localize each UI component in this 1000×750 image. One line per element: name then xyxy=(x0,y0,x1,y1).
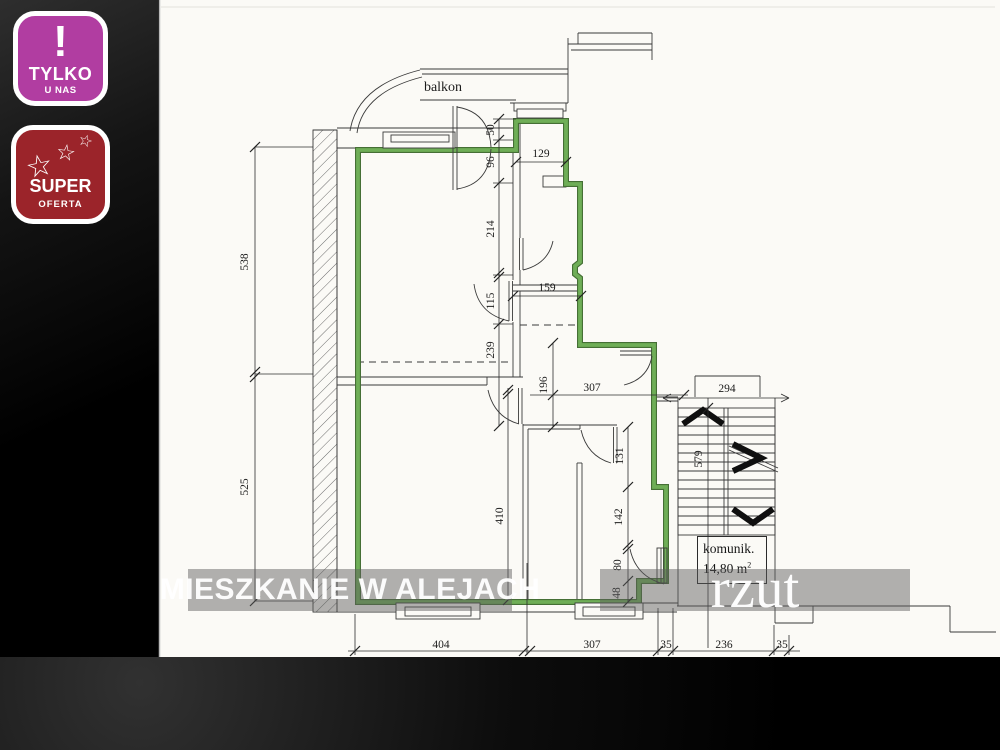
dim-label: 307 xyxy=(583,639,601,651)
watermark-primary-text: MIESZKANIE W ALEJACH xyxy=(160,573,541,607)
exclusive-badge: ! TYLKO U NAS xyxy=(13,11,108,106)
room-name: komunik. xyxy=(703,539,766,559)
dim-label: 236 xyxy=(715,639,733,651)
star-icon: ☆ xyxy=(55,141,78,166)
watermark-primary: MIESZKANIE W ALEJACH xyxy=(188,569,512,611)
super-badge-line2: OFERTA xyxy=(16,199,105,210)
balcony-label: balkon xyxy=(424,80,462,95)
dim-label: 538 xyxy=(239,253,251,271)
dim-label: 115 xyxy=(485,292,497,309)
exclamation-icon: ! xyxy=(18,21,103,63)
dim-label: 214 xyxy=(485,220,497,238)
footer-bar: NIERUCHOMOŚCI Polak-Opyrchał xyxy=(0,657,1000,750)
dim-label: 131 xyxy=(614,447,626,465)
dim-label: 294 xyxy=(718,383,736,395)
left-dark-column: ! TYLKO U NAS ☆ ☆ ☆ SUPER OFERTA xyxy=(0,0,158,657)
dim-label: 159 xyxy=(538,282,556,294)
dim-label: 239 xyxy=(485,341,497,359)
dim-label: 35 xyxy=(660,639,672,651)
dim-label: 196 xyxy=(538,376,550,394)
dim-label: 96 xyxy=(485,156,497,168)
star-icon: ☆ xyxy=(76,132,95,152)
watermark-secondary: rzut xyxy=(600,569,910,611)
dim-label: 307 xyxy=(583,382,601,394)
dim-label: 142 xyxy=(613,508,625,526)
dim-label: 404 xyxy=(432,639,450,651)
super-badge-line1: SUPER xyxy=(16,176,105,197)
listing-image: balkon 538 525 404 307 35 236 35 50 96 2… xyxy=(0,0,1000,750)
dim-label: 579 xyxy=(693,450,705,468)
exclusive-badge-line2: U NAS xyxy=(18,85,103,96)
exclusive-badge-line1: TYLKO xyxy=(18,64,103,85)
watermark-secondary-text: rzut xyxy=(711,569,800,609)
super-offer-badge: ☆ ☆ ☆ SUPER OFERTA xyxy=(11,125,110,224)
dim-label: 410 xyxy=(494,507,506,525)
dim-label: 525 xyxy=(239,478,251,496)
dim-label: 35 xyxy=(776,639,788,651)
dim-label: 129 xyxy=(532,148,550,160)
dim-label: 50 xyxy=(485,124,497,136)
